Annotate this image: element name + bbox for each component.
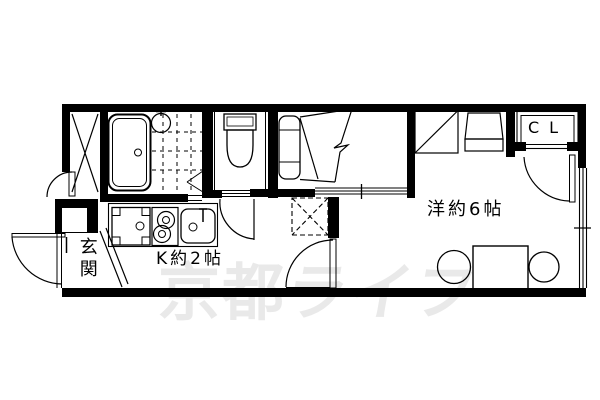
stove-icon [152,208,178,246]
wall-left-band [58,199,98,208]
closet-door-icon [524,155,575,202]
wall-bed-right [407,104,415,198]
bath-doorway [188,196,202,201]
toilet-icon [224,114,256,167]
room-label: 洋約6帖 [427,200,504,221]
bed-icon [279,109,352,182]
washing-machine-space-icon [415,111,458,154]
trunk-door-icon [47,172,75,197]
room-door-icon [286,239,336,288]
wall-nook-pillar [87,208,98,233]
bed-partition-icon [315,184,407,199]
utility-unit-icon [465,113,503,151]
wall-room-pillar [328,197,339,238]
closet-label: CL [528,119,568,137]
dining-table-icon [473,246,528,290]
toilet-door-icon [220,191,254,241]
toilet-room-border [215,112,266,194]
walls [55,104,586,297]
floor-plan: 京都ライフ [0,0,600,400]
wall-toilet-bed [268,104,278,198]
wall-left-upper [62,104,70,172]
bath-tile-floor [152,114,202,191]
kitchen-sink-icon [181,209,215,243]
storage-hatch-icon [292,198,328,235]
kitchen-label: K約2帖 [156,250,224,270]
wall-right-upper [578,104,586,168]
bath-folding-door-icon [187,171,203,192]
bathtub-icon [109,115,151,191]
window-icon [574,168,591,288]
wall-bath-bottom [100,194,188,202]
wall-closet-left [506,108,515,157]
entrance-label: 玄関 [76,237,97,281]
floor-plan-drawing [0,0,600,400]
wall-nook-left [55,199,62,233]
chair-icon [438,251,560,284]
trunk-storage-icon [72,114,98,192]
wall-bath-toilet [202,104,213,198]
wall-storage-bath [100,104,108,202]
washer-pan-icon [112,208,150,246]
